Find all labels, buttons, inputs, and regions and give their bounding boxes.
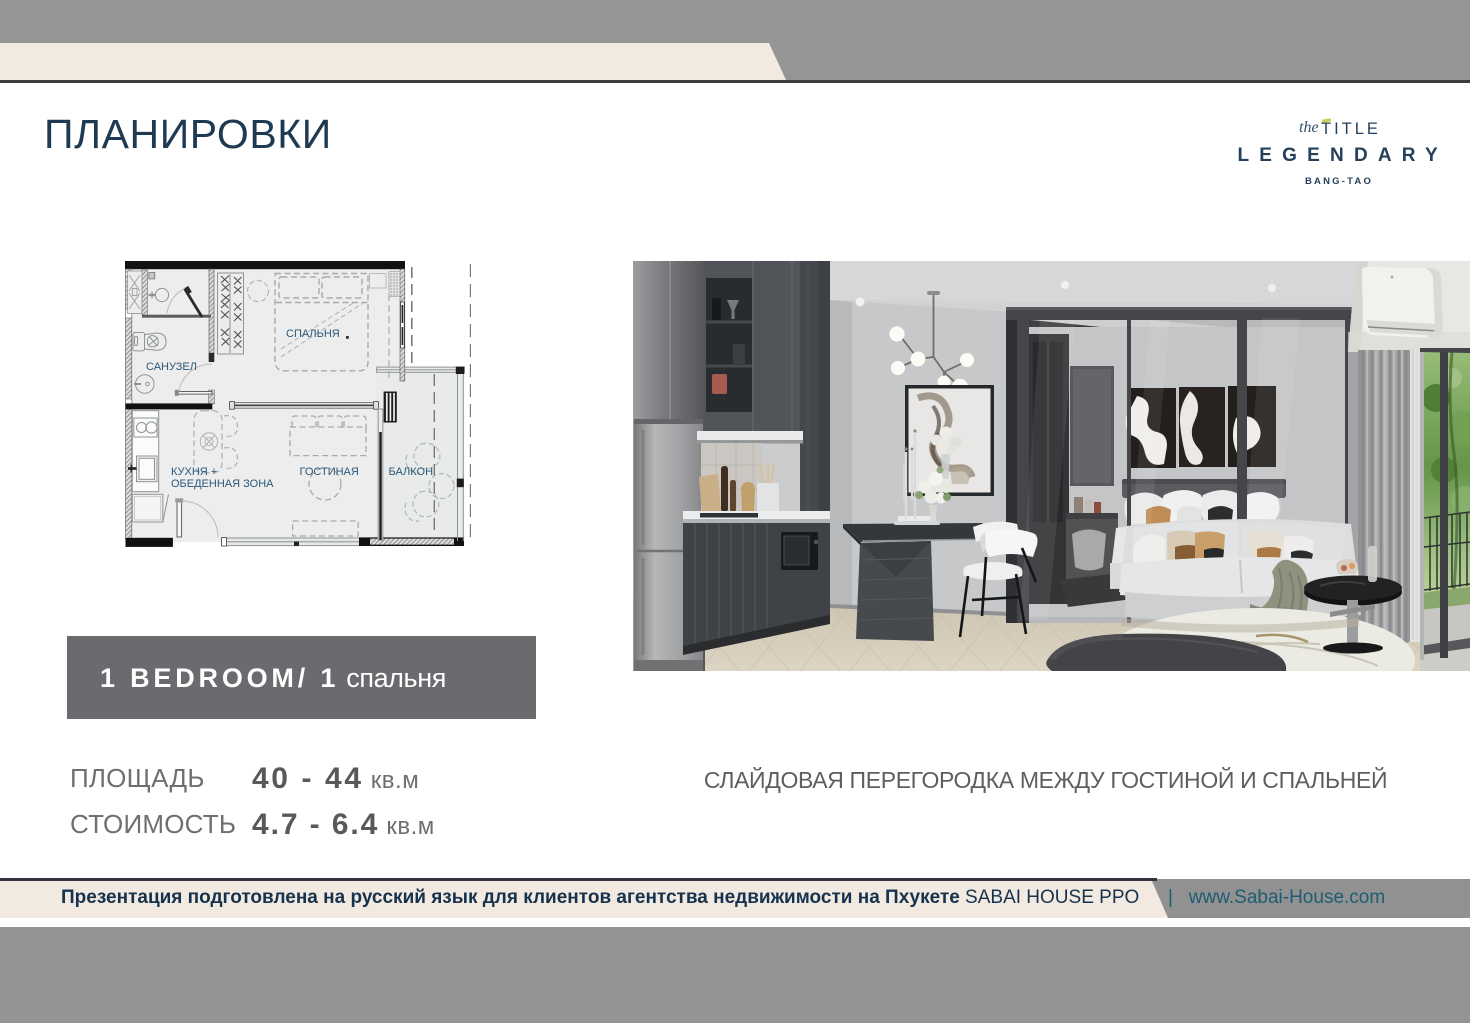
svg-text:КУХНЯ +: КУХНЯ +: [171, 466, 217, 478]
svg-text:ГОСТИНАЯ: ГОСТИНАЯ: [300, 466, 359, 478]
svg-text:СПАЛЬНЯ: СПАЛЬНЯ: [286, 328, 340, 340]
svg-text:САНУЗЕЛ: САНУЗЕЛ: [146, 361, 197, 373]
svg-text:БАЛКОН: БАЛКОН: [389, 466, 434, 478]
svg-text:ОБЕДЕННАЯ ЗОНА: ОБЕДЕННАЯ ЗОНА: [171, 478, 274, 490]
